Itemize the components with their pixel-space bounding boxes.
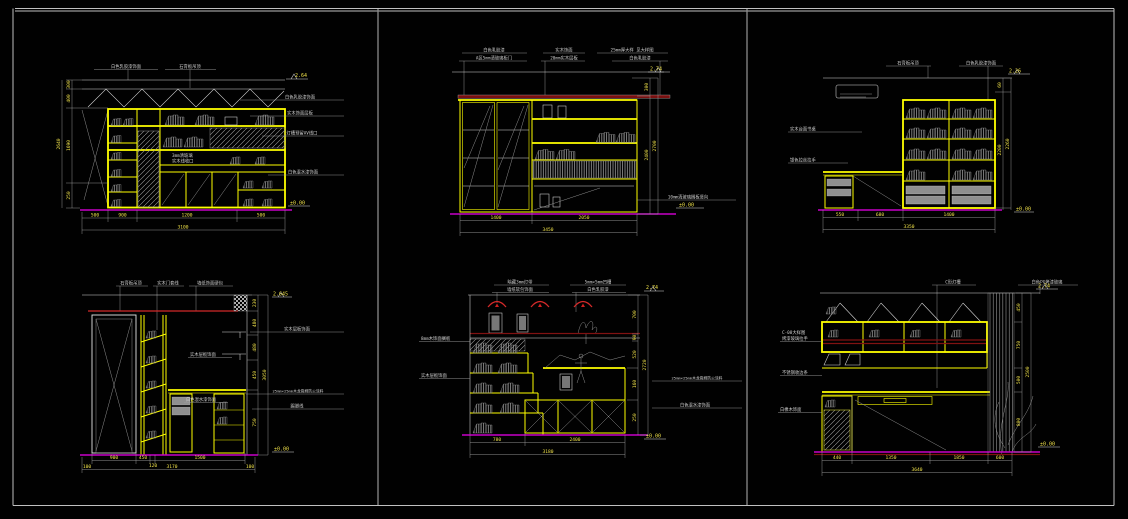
annotation-label: 石膏板吊顶 bbox=[897, 60, 919, 67]
dim-label: 500 bbox=[1016, 376, 1022, 385]
dim-label: 250 bbox=[632, 413, 638, 422]
annotation-label: A区5mm清玻璃柜门 bbox=[476, 55, 512, 62]
dim-label: 2700 bbox=[652, 140, 658, 151]
dim-label: 1690 bbox=[66, 140, 72, 151]
elevation-marker: ±0.00 bbox=[1016, 207, 1031, 213]
dim-label: 230 bbox=[252, 299, 258, 308]
dim-label: 750 bbox=[1016, 341, 1022, 350]
dim-label: 1400 bbox=[490, 215, 501, 221]
dim-label: 450 bbox=[1016, 303, 1022, 312]
dim-label: 400 bbox=[66, 94, 72, 103]
dim-label: 680 bbox=[876, 212, 885, 218]
annotation-label: 实木饰面 bbox=[555, 47, 573, 54]
annotation-label: 白色乳胶漆 bbox=[483, 47, 505, 54]
dim-label: 2500 bbox=[1025, 366, 1031, 377]
annotation-label: 烤漆玻璃拉手 bbox=[782, 335, 808, 342]
dim-label: 2200 bbox=[997, 144, 1003, 155]
plant bbox=[578, 321, 597, 344]
dim-label: 1850 bbox=[953, 455, 964, 461]
annotation-label: 实木饰面层板 bbox=[287, 110, 313, 117]
hatch-panel bbox=[210, 128, 285, 148]
dim-label: 3450 bbox=[542, 227, 553, 233]
annotation-label: 20mm实木层板 bbox=[550, 55, 578, 62]
ceiling-truss-pattern bbox=[88, 89, 284, 107]
annotation-label: 5mm×5mm凹槽 bbox=[585, 279, 612, 286]
annotation-label: 白色乳胶漆 bbox=[629, 55, 651, 62]
dim-label: 3180 bbox=[542, 449, 553, 455]
dim-label: 90 bbox=[632, 335, 638, 341]
checker-block bbox=[234, 295, 247, 311]
hatch-panel bbox=[138, 131, 159, 207]
annotation-label: 实木层板饰面 bbox=[421, 372, 447, 379]
dim-label: 750 bbox=[252, 418, 258, 427]
annotation-label: 踢脚线 bbox=[291, 403, 305, 410]
dim-label: 2260 bbox=[1005, 138, 1011, 149]
dim-label: 2400 bbox=[569, 437, 580, 443]
dim-label: 2050 bbox=[578, 215, 589, 221]
person-figure bbox=[575, 358, 587, 383]
dim-label: 480 bbox=[252, 319, 258, 328]
elevation-marker: 2.64 bbox=[295, 73, 307, 79]
dim-label: 3100 bbox=[177, 225, 188, 231]
annotation-label: 白色乳胶漆饰面 bbox=[285, 94, 316, 101]
dim-label: 800 bbox=[1016, 418, 1022, 427]
dim-label: 100 bbox=[246, 464, 255, 470]
dim-label: 300 bbox=[644, 83, 650, 92]
dim-label: 300 bbox=[66, 80, 72, 89]
annotation-label: 石膏板吊顶 bbox=[120, 280, 142, 287]
elevation-marker: 2.26 bbox=[1009, 69, 1021, 75]
dim-label: 250 bbox=[66, 191, 72, 200]
annotation-label: 暗藏3mm灯带 bbox=[508, 279, 534, 286]
elevation-marker: ±0.00 bbox=[274, 447, 289, 453]
dim-label: 480 bbox=[252, 343, 258, 352]
elevation-marker: ±0.00 bbox=[646, 434, 661, 440]
annotation-label: 实木台面书桌 bbox=[790, 126, 816, 133]
annotation-label: 实木层板饰面 bbox=[190, 351, 216, 358]
annotation-label: 25mm×25mm木龙骨刷防火涂料 bbox=[672, 376, 723, 381]
elevation-bedroom-bed-wall: 暗藏3mm灯带 墙纸软包饰面 5mm×5mm凹槽 白色乳胶漆 8mm木饰面搁板 … bbox=[419, 279, 742, 459]
elevation-bedroom-door-wall: 石膏板吊顶 实木门套线 墙纸饰面硬包 实木层板饰面 白色混水漆饰面 实木层板饰面… bbox=[80, 280, 344, 474]
elevation-marker: 2.74 bbox=[1038, 284, 1050, 290]
dim-label: 1200 bbox=[181, 213, 192, 219]
dim-label: 780 bbox=[493, 437, 502, 443]
annotation-label: 白色乳胶漆饰面 bbox=[966, 60, 997, 67]
dim-label: 450 bbox=[252, 371, 258, 380]
ceiling-red-band bbox=[458, 95, 670, 98]
dim-label: 700 bbox=[632, 310, 638, 319]
elevation-study-bookcase-a: 白色乳胶漆饰面 石膏板吊顶 3mm清玻璃 实木线收口 2.64 ±0.00 白色… bbox=[56, 63, 344, 234]
annotation-label: 银色拉丝拉手 bbox=[790, 157, 816, 164]
sheet-frame bbox=[13, 9, 1114, 506]
dim-label: 520 bbox=[632, 350, 638, 359]
annotation-label: 实木层板饰面 bbox=[284, 326, 310, 333]
annotation-label: 白色乳胶漆饰面 bbox=[111, 63, 142, 70]
annotation-label: 灯槽预留AV线口 bbox=[287, 130, 318, 137]
annotation-label: 墙纸饰面硬包 bbox=[197, 280, 223, 287]
elevation-marker: ±0.00 bbox=[290, 201, 305, 207]
door-outline bbox=[92, 315, 136, 453]
elevation-marker: ±0.00 bbox=[679, 203, 694, 209]
dim-label: 60 bbox=[997, 82, 1003, 88]
dim-label: 2720 bbox=[642, 359, 648, 370]
annotation-label: 白色混水漆饰面 bbox=[186, 396, 217, 403]
annotation-label: C-08大样图 bbox=[782, 329, 805, 336]
annotation-label: 白橡木饰面 bbox=[780, 406, 802, 413]
annotation-label: 白色混水漆饰面 bbox=[680, 402, 711, 409]
dim-label: 3350 bbox=[903, 224, 914, 230]
annotation-label: 25mm厚大样 见大样图 bbox=[610, 47, 653, 54]
dim-label: 3640 bbox=[911, 467, 922, 473]
annotation-label: 实木门套线 bbox=[157, 280, 179, 287]
elevation-study-bookcase-b: 白色乳胶漆 A区5mm清玻璃柜门 实木饰面 20mm实木层板 25mm厚大样 见… bbox=[450, 47, 736, 237]
elevation-study-desk-wall: 石膏板吊顶 白色乳胶漆饰面 2.26 实木台面书桌 银色拉丝拉手 60 2200… bbox=[788, 60, 1034, 234]
elevation-marker: 2.74 bbox=[646, 285, 658, 291]
annotation-label: 10mm清玻璃搁板竖向 bbox=[668, 194, 708, 201]
dim-label: 440 bbox=[833, 455, 842, 461]
dim-label: 120 bbox=[149, 463, 158, 469]
dim-label: 900 bbox=[110, 455, 119, 461]
annotation-label: 白色乳胶漆 bbox=[587, 286, 609, 293]
elevation-marker: ±0.00 bbox=[1040, 442, 1055, 448]
desk-drawer bbox=[858, 397, 932, 405]
dim-label: 900 bbox=[118, 213, 127, 219]
annotation-label: 3mm清玻璃 bbox=[172, 152, 193, 159]
annotation-label: 白色混水漆饰面 bbox=[288, 169, 319, 176]
annotation-label: 不锈钢收边条 bbox=[782, 369, 808, 376]
dim-label: 500 bbox=[257, 213, 266, 219]
annotation-label: 25mm×25mm木龙骨刷防火涂料 bbox=[273, 389, 324, 394]
annotation-label: C形灯槽 bbox=[945, 279, 961, 286]
annotation-label: 8mm木饰面搁板 bbox=[421, 335, 451, 342]
dim-label: 450 bbox=[139, 455, 148, 461]
dim-label: 2400 bbox=[644, 149, 650, 160]
dim-label: 3170 bbox=[166, 464, 177, 470]
dim-label: 600 bbox=[996, 455, 1005, 461]
elevation-marker: 2.645 bbox=[273, 292, 288, 298]
dim-label: 160 bbox=[632, 380, 638, 389]
dim-label: 1400 bbox=[943, 212, 954, 218]
hatch-panel bbox=[824, 410, 850, 450]
cad-drawing-sheet[interactable]: 白色乳胶漆饰面 石膏板吊顶 3mm清玻璃 实木线收口 2.64 ±0.00 白色… bbox=[0, 0, 1128, 519]
dim-label: 550 bbox=[836, 212, 845, 218]
elevation-marker: 2.74 bbox=[650, 67, 662, 73]
cad-canvas[interactable]: 白色乳胶漆饰面 石膏板吊顶 3mm清玻璃 实木线收口 2.64 ±0.00 白色… bbox=[0, 0, 1128, 519]
annotation-label: 墙纸软包饰面 bbox=[507, 286, 533, 293]
slatted-panel bbox=[533, 161, 636, 178]
elevation-bedroom-desk-wall: C形灯槽 白色PG烤漆玻璃 C-08大样图 烤漆玻璃拉手 不锈钢收边条 白橡木饰… bbox=[778, 279, 1078, 477]
dim-label: 1350 bbox=[885, 455, 896, 461]
dim-label: 1500 bbox=[194, 455, 205, 461]
desk-monitor bbox=[540, 194, 549, 207]
air-conditioner bbox=[836, 85, 878, 98]
dim-label: 100 bbox=[83, 464, 92, 470]
annotation-label: 实木线收口 bbox=[172, 158, 193, 165]
dim-label: 2640 bbox=[56, 138, 62, 149]
annotation-label: 石膏板吊顶 bbox=[179, 63, 201, 70]
dim-label: 3050 bbox=[262, 369, 268, 380]
open-cabinet-doors bbox=[826, 303, 981, 322]
dim-label: 500 bbox=[91, 213, 100, 219]
